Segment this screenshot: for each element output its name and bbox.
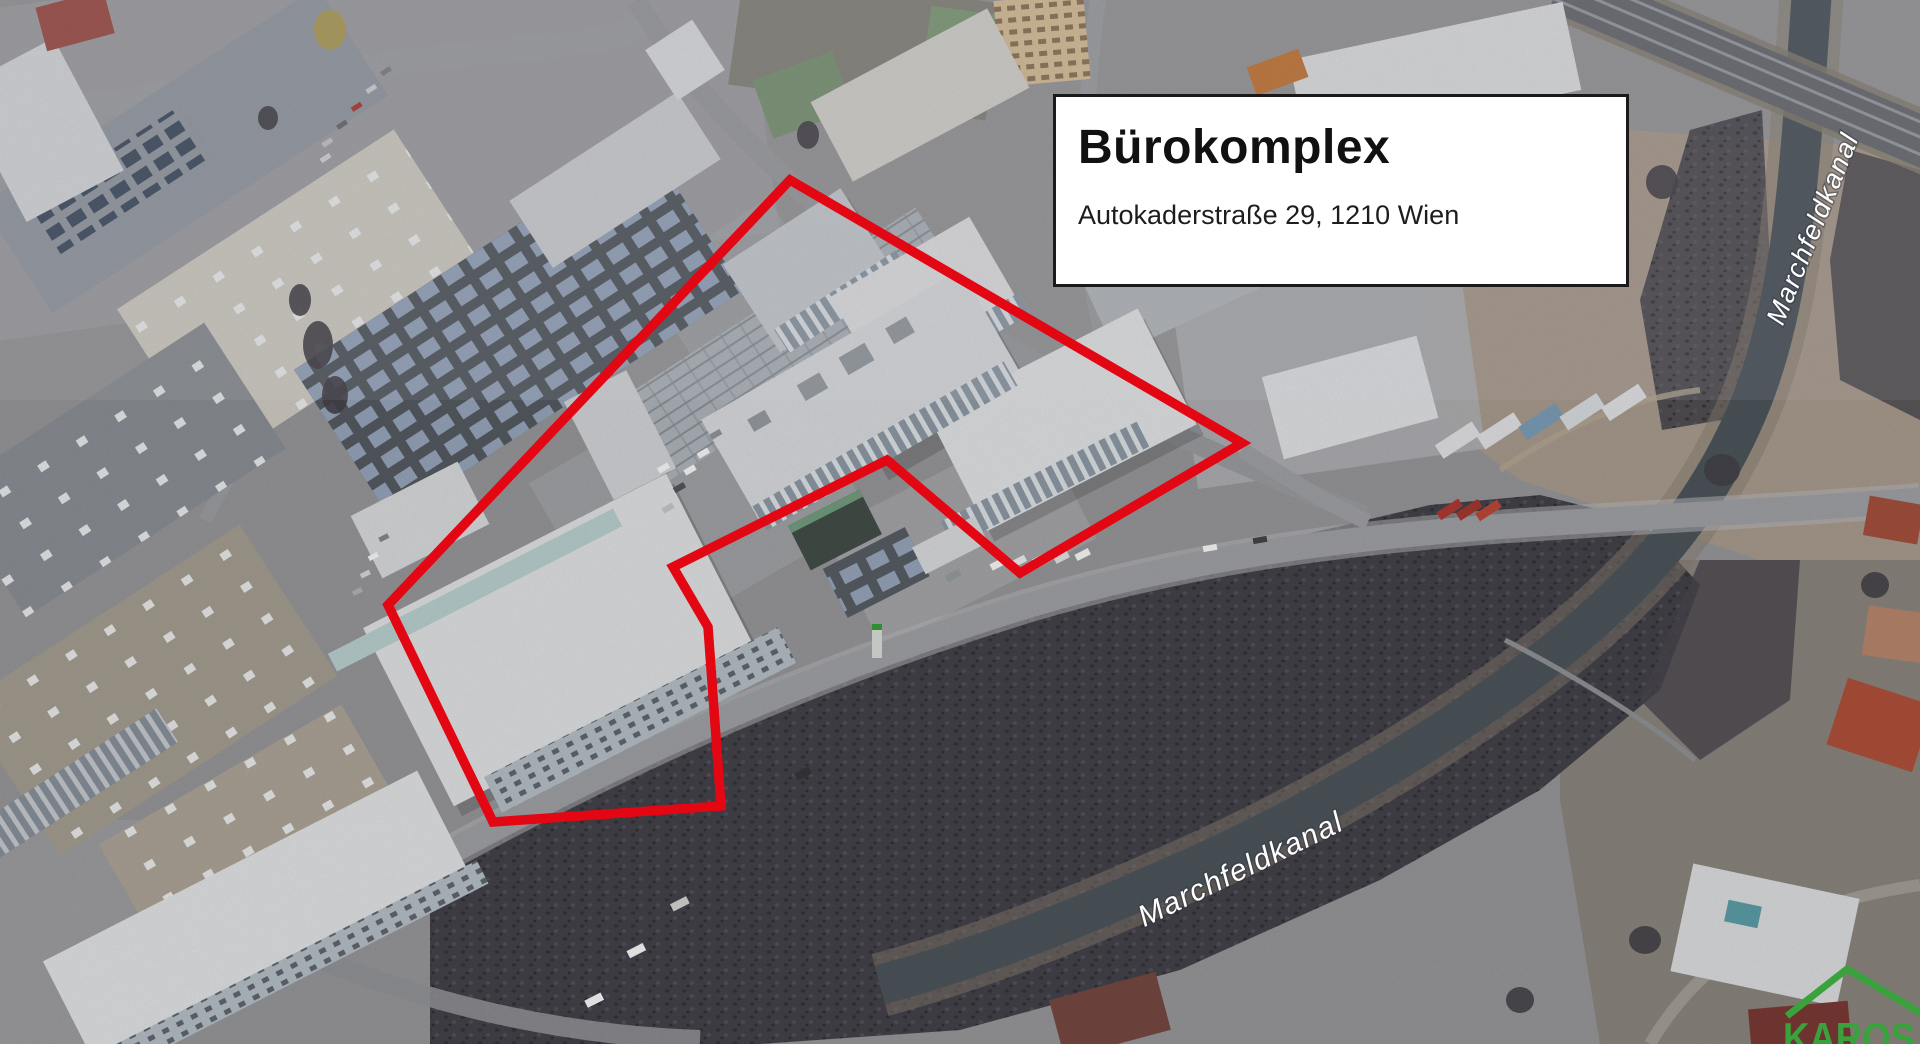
- aerial-photo: Marchfeldkanal Marchfeldkanal: [0, 0, 1920, 1044]
- property-address: Autokaderstraße 29, 1210 Wien: [1078, 199, 1608, 231]
- info-card: Bürokomplex Autokaderstraße 29, 1210 Wie…: [1053, 94, 1629, 287]
- karos-logo-graphic: KAROS: [1779, 956, 1920, 1044]
- light-cast: [0, 0, 1920, 400]
- aerial-screenshot: Marchfeldkanal Marchfeldkanal Bürokomple…: [0, 0, 1920, 1044]
- karos-logo: KAROS: [1779, 956, 1920, 1044]
- roof-icon: [1787, 969, 1920, 1018]
- karos-logo-text: KAROS: [1783, 1014, 1915, 1044]
- property-title: Bürokomplex: [1078, 123, 1608, 173]
